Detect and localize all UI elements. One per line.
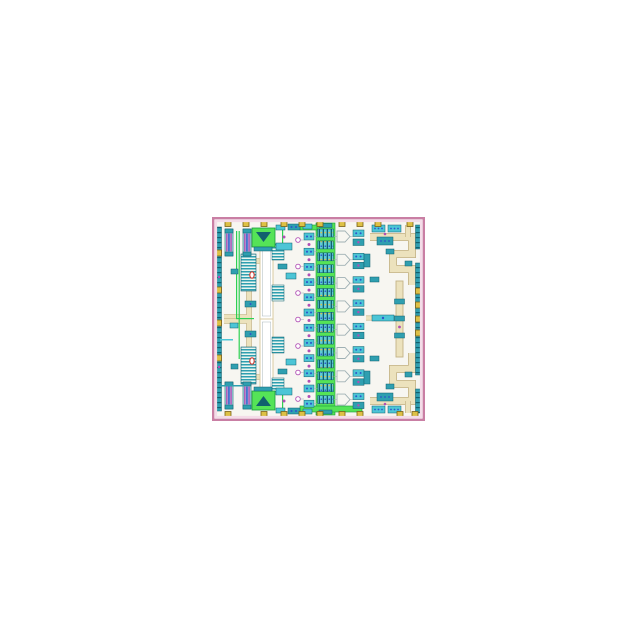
- layout-shape: [355, 302, 357, 304]
- layout-shape: [394, 228, 396, 230]
- layout-shape: [360, 349, 362, 351]
- layout-shape: [218, 366, 220, 368]
- layout-shape: [220, 339, 233, 341]
- layout-shape: [243, 382, 251, 386]
- layout-shape: [295, 226, 297, 228]
- layout-shape: [230, 234, 232, 252]
- layout-shape: [226, 387, 228, 405]
- layout-shape: [230, 323, 238, 328]
- layout-shape: [254, 387, 272, 391]
- layout-shape: [244, 234, 246, 252]
- layout-shape: [364, 371, 370, 384]
- driver-cell: [304, 263, 314, 270]
- layout-shape: [308, 319, 311, 322]
- layout-shape: [308, 395, 311, 398]
- layout-shape: [360, 279, 362, 281]
- port-ring: [296, 397, 301, 402]
- layout-shape: [364, 254, 370, 267]
- driver-cell: [304, 324, 314, 331]
- layout-shape: [360, 256, 362, 258]
- layout-shape: [360, 302, 362, 304]
- layout-shape: [355, 279, 357, 281]
- layout-shape: [357, 241, 359, 243]
- layout-shape: [370, 356, 379, 361]
- unit-cell: [318, 384, 334, 392]
- layout-shape: [220, 385, 244, 387]
- driver-cell: [304, 294, 314, 301]
- green-wire: [236, 231, 237, 319]
- layout-shape: [286, 273, 296, 279]
- layout-shape: [243, 229, 251, 233]
- layout-shape: [394, 409, 396, 411]
- layout-shape: [378, 228, 380, 230]
- layout-shape: [398, 326, 401, 329]
- mini-ladder: [272, 337, 284, 353]
- layout-shape: [357, 288, 359, 290]
- layout-shape: [360, 325, 362, 327]
- layout-shape: [306, 387, 308, 389]
- via-block: [353, 347, 364, 354]
- layout-shape: [380, 240, 382, 242]
- layout-shape: [306, 266, 308, 268]
- layout-shape: [357, 311, 359, 313]
- layout-shape: [226, 234, 228, 252]
- unit-cell: [318, 360, 334, 368]
- marker-oval: [250, 272, 254, 278]
- mini-ladder: [272, 285, 284, 301]
- layout-shape: [288, 408, 300, 414]
- layout-shape: [397, 228, 399, 230]
- via-block: [353, 253, 364, 259]
- layout-shape: [306, 281, 308, 283]
- layout-shape: [250, 333, 252, 335]
- layout-shape: [308, 258, 311, 261]
- via-block: [353, 230, 364, 237]
- layout-shape: [276, 388, 292, 395]
- layout-shape: [357, 404, 359, 406]
- layout-shape: [243, 405, 251, 409]
- layout-shape: [416, 225, 421, 249]
- layout-shape: [310, 387, 312, 389]
- layout-shape: [225, 252, 233, 256]
- layout-shape: [310, 403, 312, 405]
- layout-shape: [308, 365, 311, 368]
- layout-shape: [388, 240, 390, 242]
- via-block: [353, 393, 364, 400]
- driver-cell: [304, 385, 314, 392]
- layout-shape: [283, 236, 286, 239]
- layout-shape: [374, 409, 376, 411]
- unit-cell: [318, 241, 334, 249]
- via-block: [353, 370, 364, 377]
- layout-shape: [308, 334, 311, 337]
- layout-shape: [306, 342, 308, 344]
- unit-cell: [318, 372, 334, 380]
- green-wire: [236, 318, 254, 319]
- layout-shape: [388, 396, 390, 398]
- port-ring: [296, 238, 301, 243]
- layout-shape: [278, 264, 287, 269]
- marker-oval: [250, 358, 254, 364]
- driver-cell: [304, 248, 314, 255]
- layout-shape: [310, 235, 312, 237]
- layout-shape: [370, 277, 379, 282]
- unit-cell: [318, 396, 334, 404]
- layout-shape: [357, 264, 359, 266]
- layout-shape: [248, 387, 250, 405]
- layout-shape: [384, 240, 386, 242]
- chip-layout-viewport: [212, 217, 425, 421]
- layout-shape: [357, 381, 359, 383]
- driver-cell: [304, 339, 314, 346]
- layout-shape: [308, 349, 311, 352]
- layout-shape: [306, 327, 308, 329]
- layout-shape: [291, 226, 293, 228]
- via-block: [353, 323, 364, 330]
- page-background: [0, 0, 640, 640]
- layout-shape: [384, 403, 387, 406]
- port-ring: [296, 291, 301, 296]
- layout-shape: [306, 403, 308, 405]
- layout-shape: [286, 359, 296, 365]
- layout-shape: [310, 372, 312, 374]
- layout-shape: [306, 357, 308, 359]
- layout-shape: [246, 234, 248, 252]
- layout-shape: [416, 389, 421, 413]
- layout-shape: [381, 228, 383, 230]
- layout-shape: [218, 276, 220, 278]
- layout-shape: [397, 409, 399, 411]
- resistor-ladder: [241, 347, 256, 384]
- unit-cell: [318, 253, 334, 261]
- layout-shape: [390, 409, 392, 411]
- layout-shape: [308, 243, 311, 246]
- bar-clip: [395, 333, 405, 338]
- port-ring: [296, 264, 301, 269]
- via-block: [353, 300, 364, 307]
- unit-cell: [318, 265, 334, 273]
- layout-shape: [254, 247, 272, 251]
- via-block: [353, 277, 364, 284]
- driver-cell: [304, 355, 314, 362]
- layout-shape: [382, 317, 384, 319]
- layout-shape: [310, 342, 312, 344]
- bar-clip: [395, 299, 405, 304]
- layout-shape: [308, 304, 311, 307]
- layout-shape: [310, 281, 312, 283]
- unit-cell: [318, 229, 334, 237]
- layout-shape: [355, 232, 357, 234]
- layout-shape: [355, 349, 357, 351]
- layout-shape: [384, 396, 386, 398]
- port-ring: [296, 370, 301, 375]
- layout-shape: [306, 235, 308, 237]
- layout-shape: [306, 372, 308, 374]
- white-macro-upper: [260, 247, 273, 319]
- unit-cell: [318, 300, 334, 308]
- unit-cell: [318, 324, 334, 332]
- layout-shape: [360, 232, 362, 234]
- driver-cell: [304, 370, 314, 377]
- white-macro-lower: [260, 319, 273, 391]
- layout-shape: [225, 405, 233, 409]
- layout-shape: [228, 234, 230, 252]
- layout-shape: [308, 289, 311, 292]
- unit-cell: [318, 336, 334, 344]
- layout-shape: [295, 410, 297, 412]
- layout-shape: [231, 364, 238, 369]
- layout-shape: [308, 380, 311, 383]
- layout-shape: [381, 409, 383, 411]
- layout-shapes: [213, 218, 424, 420]
- layout-shape: [306, 251, 308, 253]
- layout-shape: [246, 387, 248, 405]
- layout-shape: [231, 269, 238, 274]
- layout-shape: [384, 233, 387, 236]
- layout-shape: [386, 249, 394, 254]
- port-ring: [296, 344, 301, 349]
- layout-shape: [278, 369, 287, 374]
- unit-cell: [318, 277, 334, 285]
- layout-shape: [243, 252, 251, 256]
- layout-shape: [310, 311, 312, 313]
- unit-cell: [318, 312, 334, 320]
- layout-shape: [306, 311, 308, 313]
- port-ring: [296, 317, 301, 322]
- layout-shape: [390, 228, 392, 230]
- layout-shape: [288, 224, 300, 230]
- layout-shape: [310, 327, 312, 329]
- layout-shape: [355, 372, 357, 374]
- green-wire: [239, 231, 240, 359]
- layout-shape: [310, 357, 312, 359]
- unit-cell: [318, 289, 334, 297]
- layout-shape: [310, 296, 312, 298]
- layout-shape: [374, 228, 376, 230]
- layout-shape: [310, 266, 312, 268]
- layout-shape: [225, 229, 233, 233]
- layout-shape: [306, 296, 308, 298]
- layout-shape: [276, 243, 292, 250]
- layout-shape: [380, 396, 382, 398]
- driver-cell: [304, 309, 314, 316]
- layout-shape: [355, 395, 357, 397]
- layout-shape: [291, 410, 293, 412]
- layout-shape: [355, 256, 357, 258]
- layout-shape: [360, 395, 362, 397]
- layout-shape: [230, 387, 232, 405]
- layout-shape: [386, 384, 394, 389]
- layout-shape: [244, 387, 246, 405]
- layout-shape: [355, 325, 357, 327]
- layout-shape: [378, 409, 380, 411]
- layout-shape: [228, 387, 230, 405]
- layout-shape: [357, 334, 359, 336]
- driver-cell: [304, 279, 314, 286]
- ic-layout-image: [212, 217, 425, 421]
- layout-shape: [405, 372, 412, 377]
- bar-clip: [395, 316, 405, 321]
- layout-shape: [308, 273, 311, 276]
- driver-cell: [304, 400, 314, 407]
- layout-shape: [250, 303, 252, 305]
- layout-shape: [248, 234, 250, 252]
- unit-cell: [318, 348, 334, 356]
- driver-cell: [304, 233, 314, 240]
- layout-shape: [283, 400, 286, 403]
- layout-shape: [360, 372, 362, 374]
- layout-shape: [405, 261, 412, 266]
- layout-shape: [310, 251, 312, 253]
- layout-shape: [357, 358, 359, 360]
